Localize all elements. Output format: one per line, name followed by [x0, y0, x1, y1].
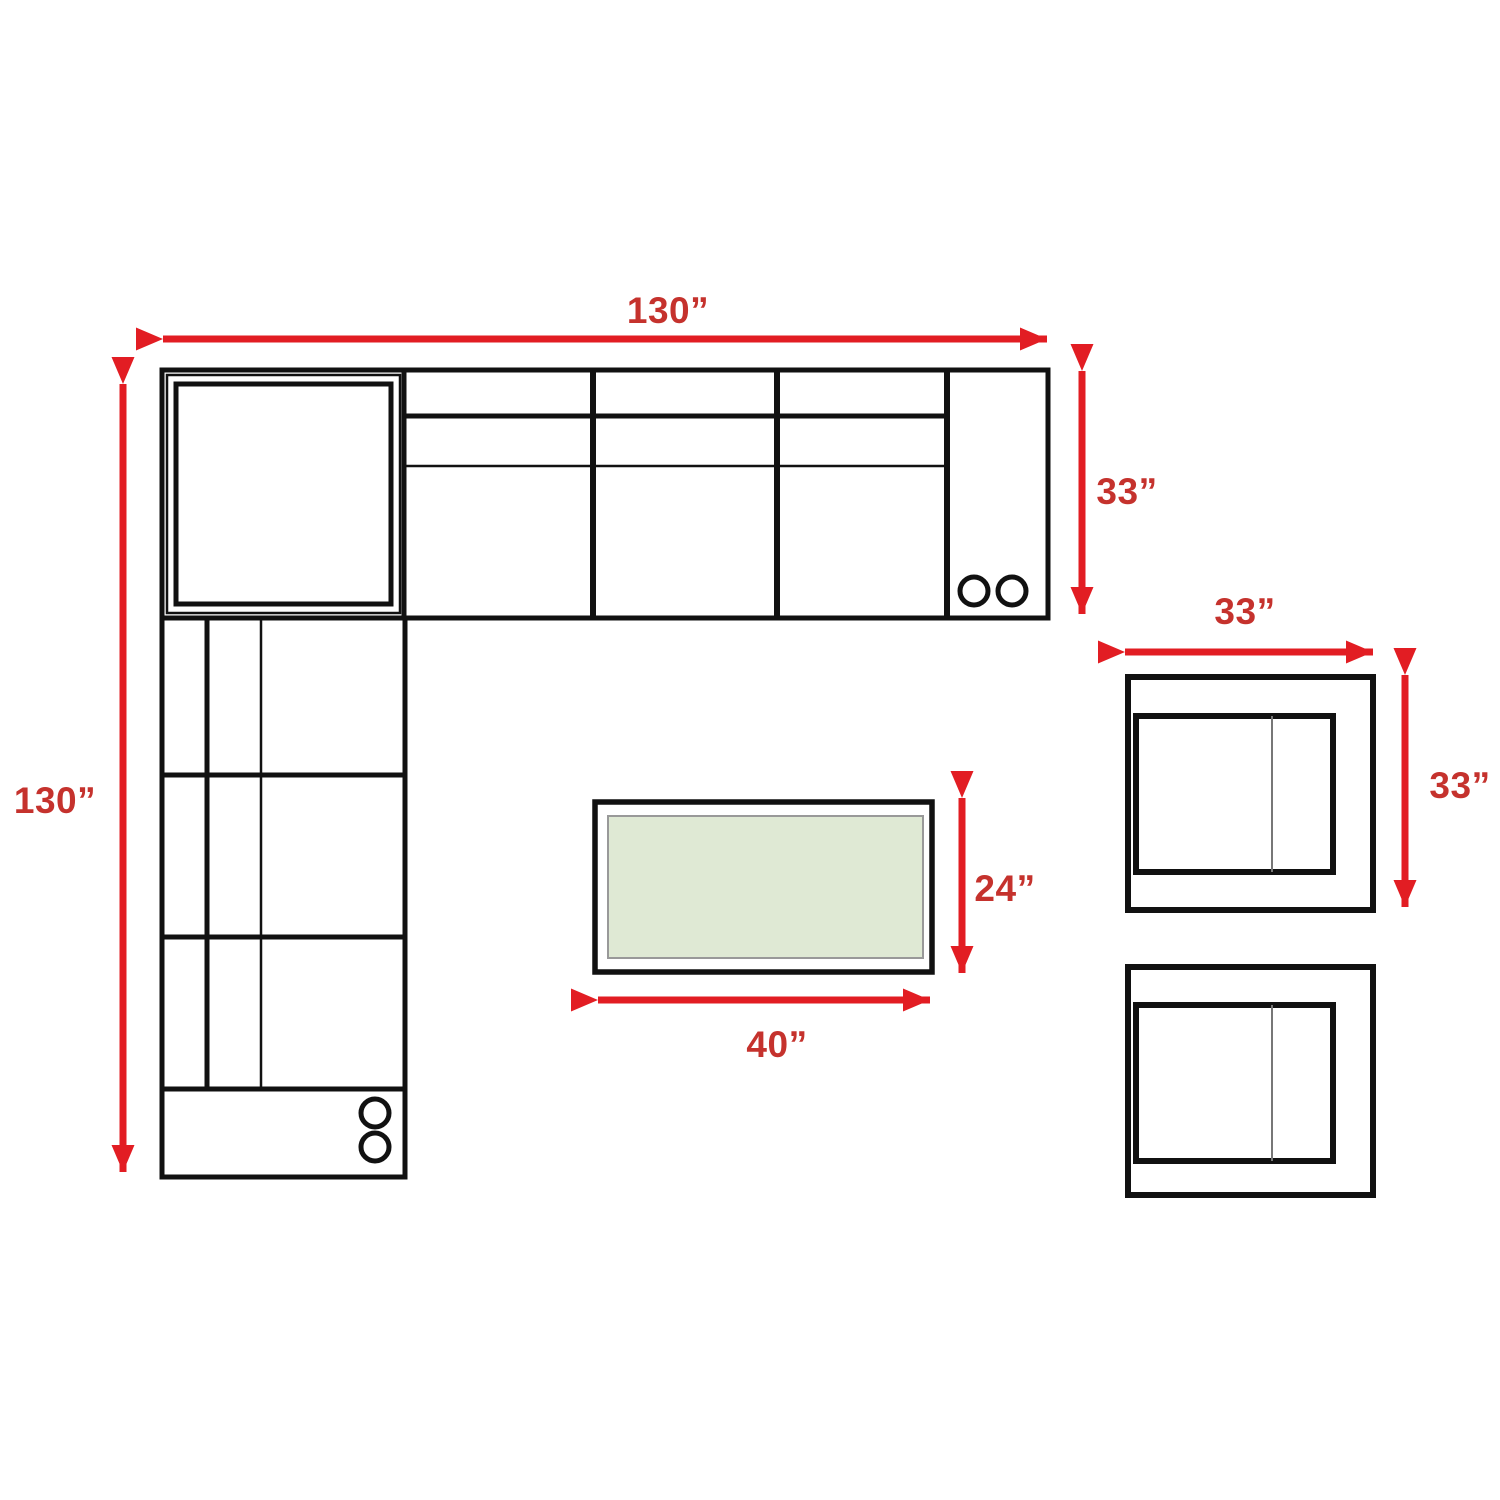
table-width-label: 40” [746, 1024, 807, 1065]
sofa-vertical-wing [162, 618, 405, 1177]
floor-plan-canvas: 130” 130” 33” 33” 33” 24” 40” [0, 0, 1500, 1500]
coffee-table-top [608, 816, 923, 958]
sofa-vertical-outline [162, 618, 405, 1177]
corner-wedge-inner [176, 384, 391, 604]
cup-holder-icon [361, 1133, 389, 1161]
cup-holder-icon [361, 1099, 389, 1127]
cup-holder-icon [960, 577, 988, 605]
floor-plan-diagram: 130” 130” 33” 33” 33” 24” 40” [0, 0, 1500, 1500]
coffee-table [595, 802, 932, 972]
sectional-width-label: 130” [627, 290, 709, 331]
table-depth-label: 24” [974, 868, 1035, 909]
armchair-outline [1128, 677, 1373, 910]
armchair-seat [1136, 1005, 1333, 1161]
armchair-width-label: 33” [1214, 591, 1275, 632]
sofa-horizontal-outline [162, 370, 1048, 618]
cup-holder-icon [998, 577, 1026, 605]
armchair-top [1128, 677, 1373, 910]
armchair-seat [1136, 716, 1333, 872]
armchair-depth-label: 33” [1429, 765, 1490, 806]
sectional-depth-label: 130” [14, 780, 96, 821]
sofa-seat-depth-label: 33” [1096, 471, 1157, 512]
corner-wedge-outer [167, 375, 400, 613]
armchair-bottom [1128, 967, 1373, 1195]
sofa-horizontal-wing [162, 370, 1048, 618]
